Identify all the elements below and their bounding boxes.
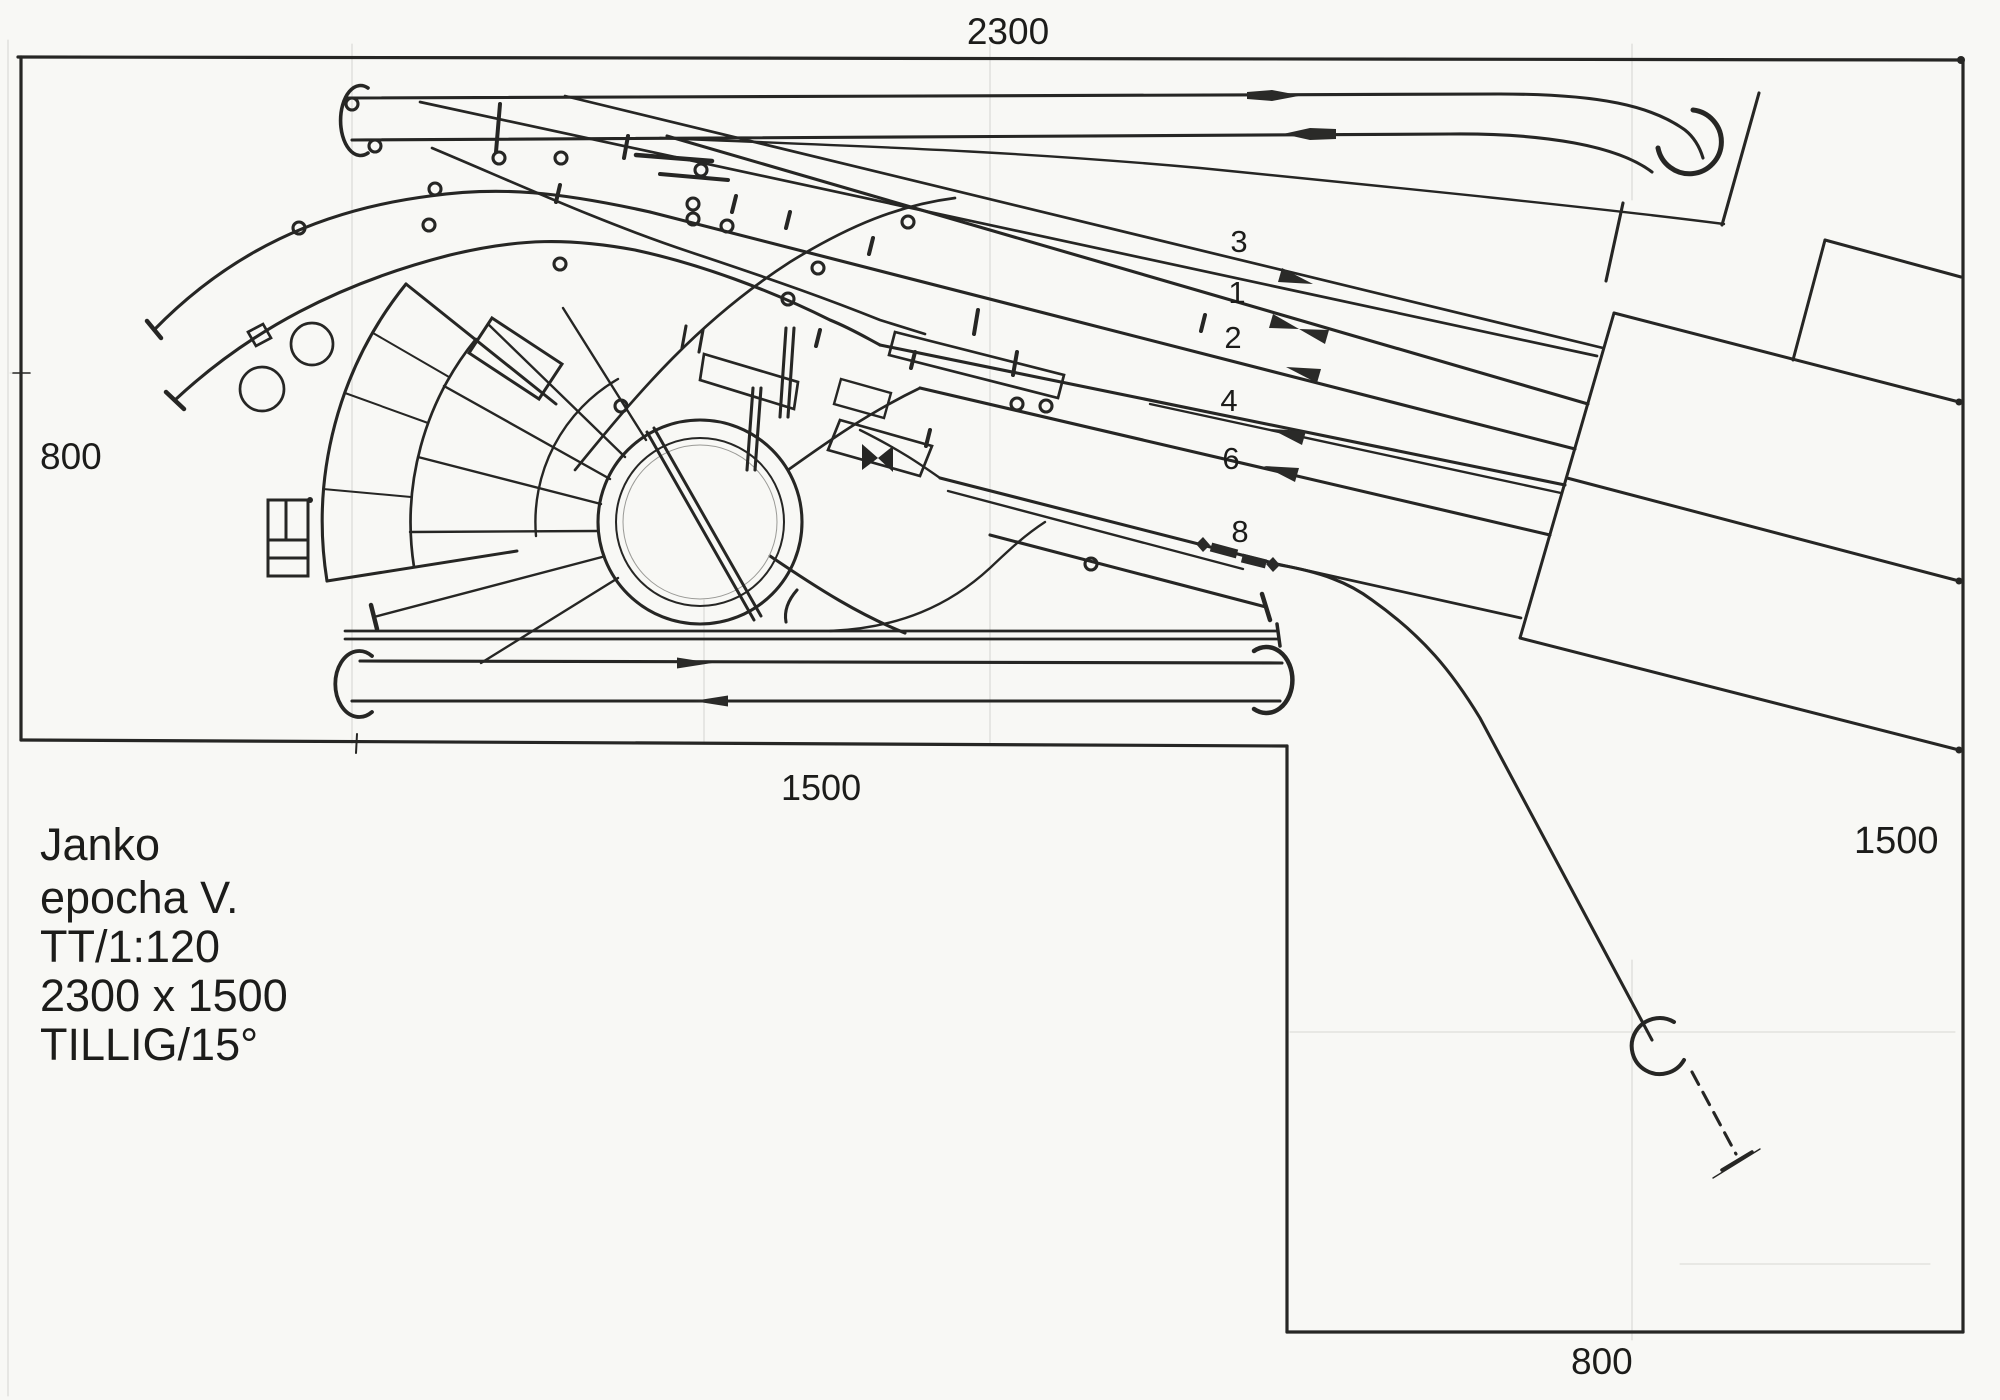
svg-text:TT/1:120: TT/1:120	[40, 921, 220, 972]
svg-text:1500: 1500	[781, 767, 861, 808]
svg-text:8: 8	[1231, 514, 1248, 549]
svg-text:TILLIG/15°: TILLIG/15°	[40, 1019, 258, 1070]
svg-text:1500: 1500	[1854, 820, 1939, 862]
svg-text:2300 x 1500: 2300 x 1500	[40, 970, 288, 1021]
svg-text:epocha V.: epocha V.	[40, 872, 239, 923]
svg-text:2: 2	[1224, 320, 1241, 355]
svg-text:800: 800	[1571, 1341, 1633, 1382]
svg-text:4: 4	[1220, 383, 1237, 418]
svg-text:Janko: Janko	[40, 819, 160, 870]
svg-text:800: 800	[40, 436, 102, 477]
svg-text:2300: 2300	[967, 11, 1049, 52]
svg-text:1: 1	[1228, 275, 1245, 310]
svg-text:3: 3	[1230, 224, 1247, 259]
svg-text:6: 6	[1222, 441, 1239, 476]
